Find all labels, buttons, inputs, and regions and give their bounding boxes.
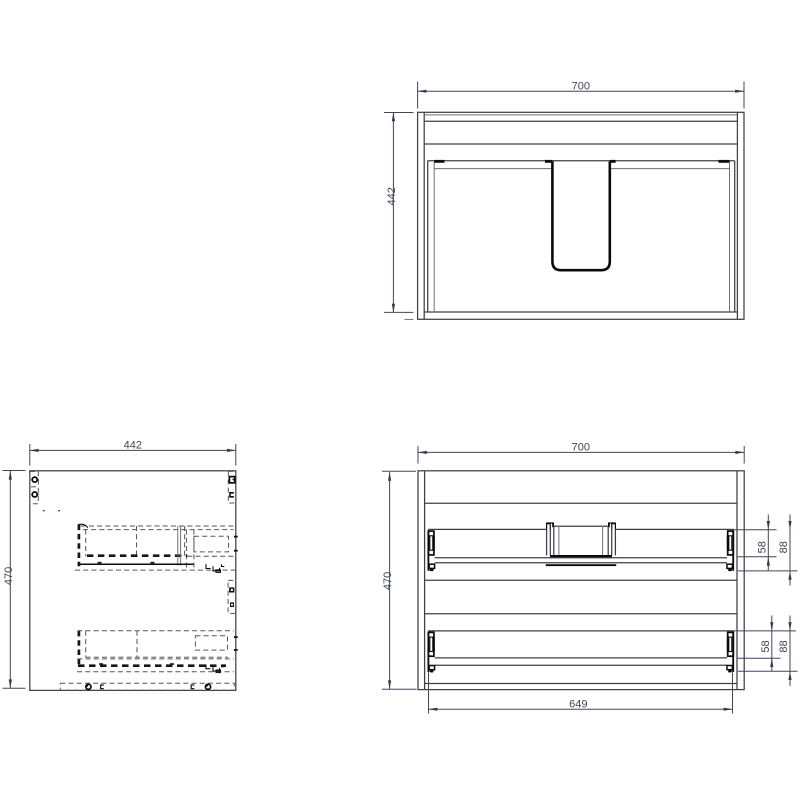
svg-text:700: 700: [572, 442, 590, 454]
svg-text:442: 442: [124, 440, 142, 452]
svg-text:700: 700: [572, 81, 590, 93]
svg-text:470: 470: [3, 567, 15, 585]
svg-text:88: 88: [778, 640, 790, 652]
svg-text:470: 470: [382, 572, 394, 590]
svg-text:88: 88: [778, 541, 790, 553]
svg-text:649: 649: [569, 699, 587, 711]
svg-text:442: 442: [386, 187, 398, 205]
svg-text:58: 58: [756, 541, 768, 553]
svg-text:58: 58: [760, 640, 772, 652]
